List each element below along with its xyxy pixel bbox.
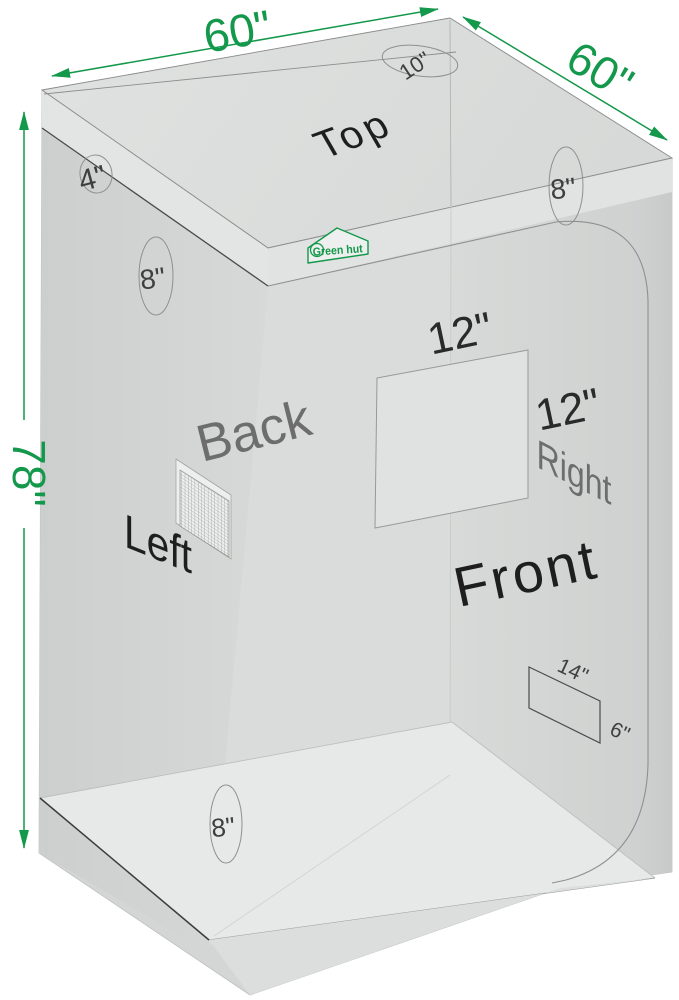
grow-tent-diagram-svg: 12" 12" 14" 6" 10" 4" 8" 8" 8" Top Back …: [0, 0, 679, 1000]
product-diagram: 12" 12" 14" 6" 10" 4" 8" 8" 8" Top Back …: [0, 0, 679, 1000]
window-outline: [375, 350, 528, 528]
tent-body: [39, 18, 672, 995]
right-upper-port-label: 8": [549, 172, 578, 205]
height-dim-label: 78": [3, 439, 55, 507]
left-lower-port-label: 8": [210, 811, 237, 843]
left-upper-port-label: 8": [138, 261, 168, 295]
